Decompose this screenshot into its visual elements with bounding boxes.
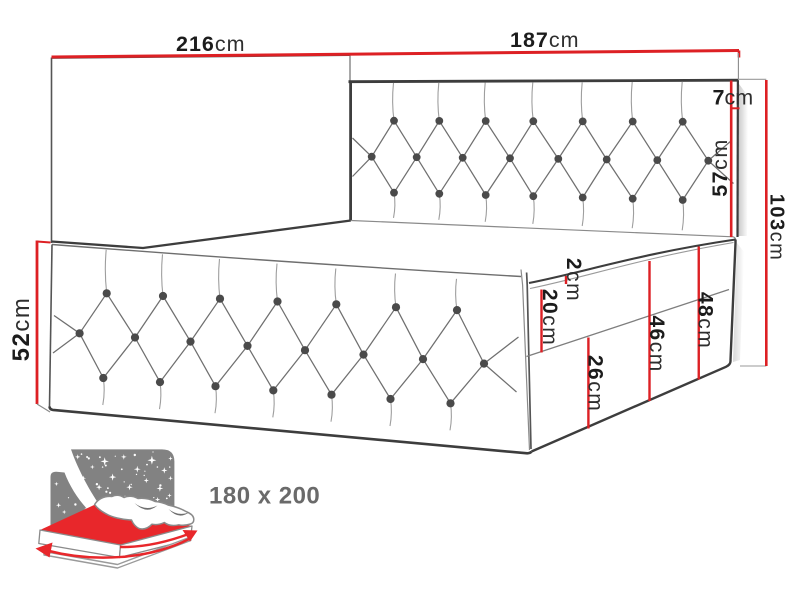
- svg-text:46cm: 46cm: [645, 315, 668, 372]
- svg-text:216cm: 216cm: [176, 32, 246, 56]
- svg-text:180 x 200: 180 x 200: [209, 483, 320, 510]
- svg-text:48cm: 48cm: [694, 292, 717, 349]
- svg-text:103cm: 103cm: [766, 194, 788, 262]
- svg-text:2cm: 2cm: [562, 258, 585, 302]
- svg-text:57cm: 57cm: [708, 138, 732, 197]
- svg-text:26cm: 26cm: [584, 355, 607, 412]
- svg-text:187cm: 187cm: [510, 28, 580, 52]
- svg-text:20cm: 20cm: [538, 289, 561, 346]
- svg-text:52cm: 52cm: [8, 297, 35, 362]
- svg-text:7cm: 7cm: [713, 86, 754, 110]
